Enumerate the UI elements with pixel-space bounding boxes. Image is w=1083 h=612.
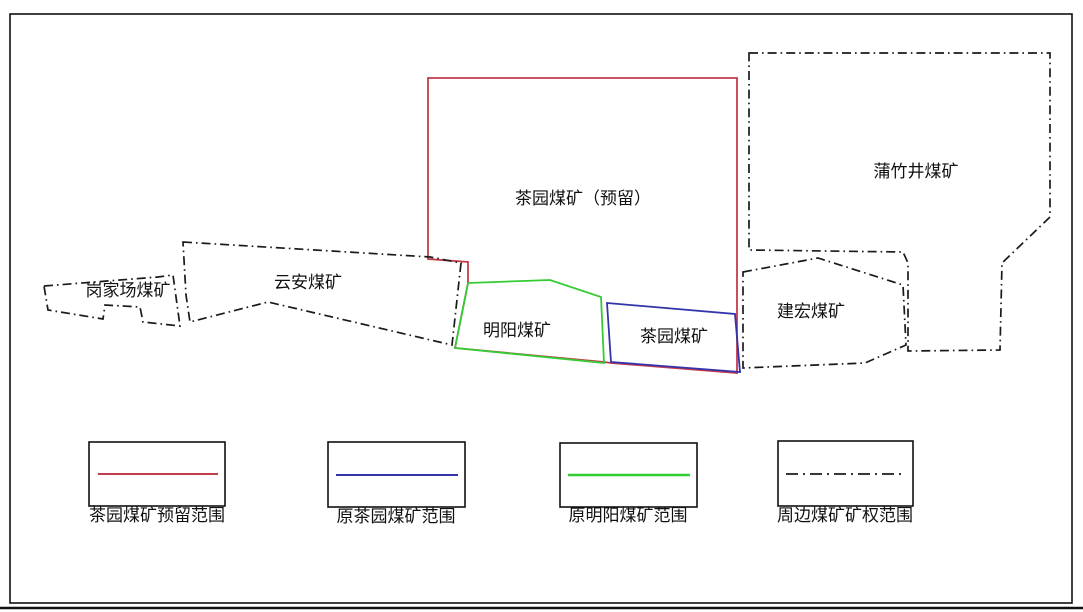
region-label-puzhujing: 蒲竹井煤矿 (874, 162, 959, 181)
legend-label: 原茶园煤矿范围 (337, 507, 456, 526)
drawing-sheet: 岗家场煤矿 云安煤矿 茶园煤矿（预留） 明阳煤矿 茶园煤矿 建宏煤矿 蒲竹井煤矿… (0, 0, 1083, 612)
region-label-jianhong: 建宏煤矿 (777, 302, 845, 321)
legend-label: 原明阳煤矿范围 (569, 506, 688, 525)
region-label-gangjiachang: 岗家场煤矿 (86, 281, 171, 300)
legend: 茶园煤矿预留范围 原茶园煤矿范围 原明阳煤矿范围 周边煤矿矿权范围 (89, 441, 913, 526)
mine-boundary-map: 岗家场煤矿 云安煤矿 茶园煤矿（预留） 明阳煤矿 茶园煤矿 建宏煤矿 蒲竹井煤矿… (0, 0, 1083, 612)
region-label-chayuan-original: 茶园煤矿 (640, 327, 708, 346)
region-label-mingyang: 明阳煤矿 (483, 321, 551, 340)
legend-item-original-mingyang-range: 原明阳煤矿范围 (560, 443, 697, 525)
legend-item-original-chayuan-range: 原茶园煤矿范围 (328, 442, 465, 526)
region-label-yunan: 云安煤矿 (274, 273, 342, 292)
legend-label: 周边煤矿矿权范围 (777, 506, 913, 525)
legend-label: 茶园煤矿预留范围 (89, 506, 225, 525)
legend-item-reserved-range: 茶园煤矿预留范围 (89, 442, 225, 525)
region-yunan (183, 242, 461, 345)
region-label-chayuan-reserved: 茶园煤矿（预留） (515, 189, 651, 208)
legend-item-surrounding-rights-range: 周边煤矿矿权范围 (777, 441, 913, 525)
